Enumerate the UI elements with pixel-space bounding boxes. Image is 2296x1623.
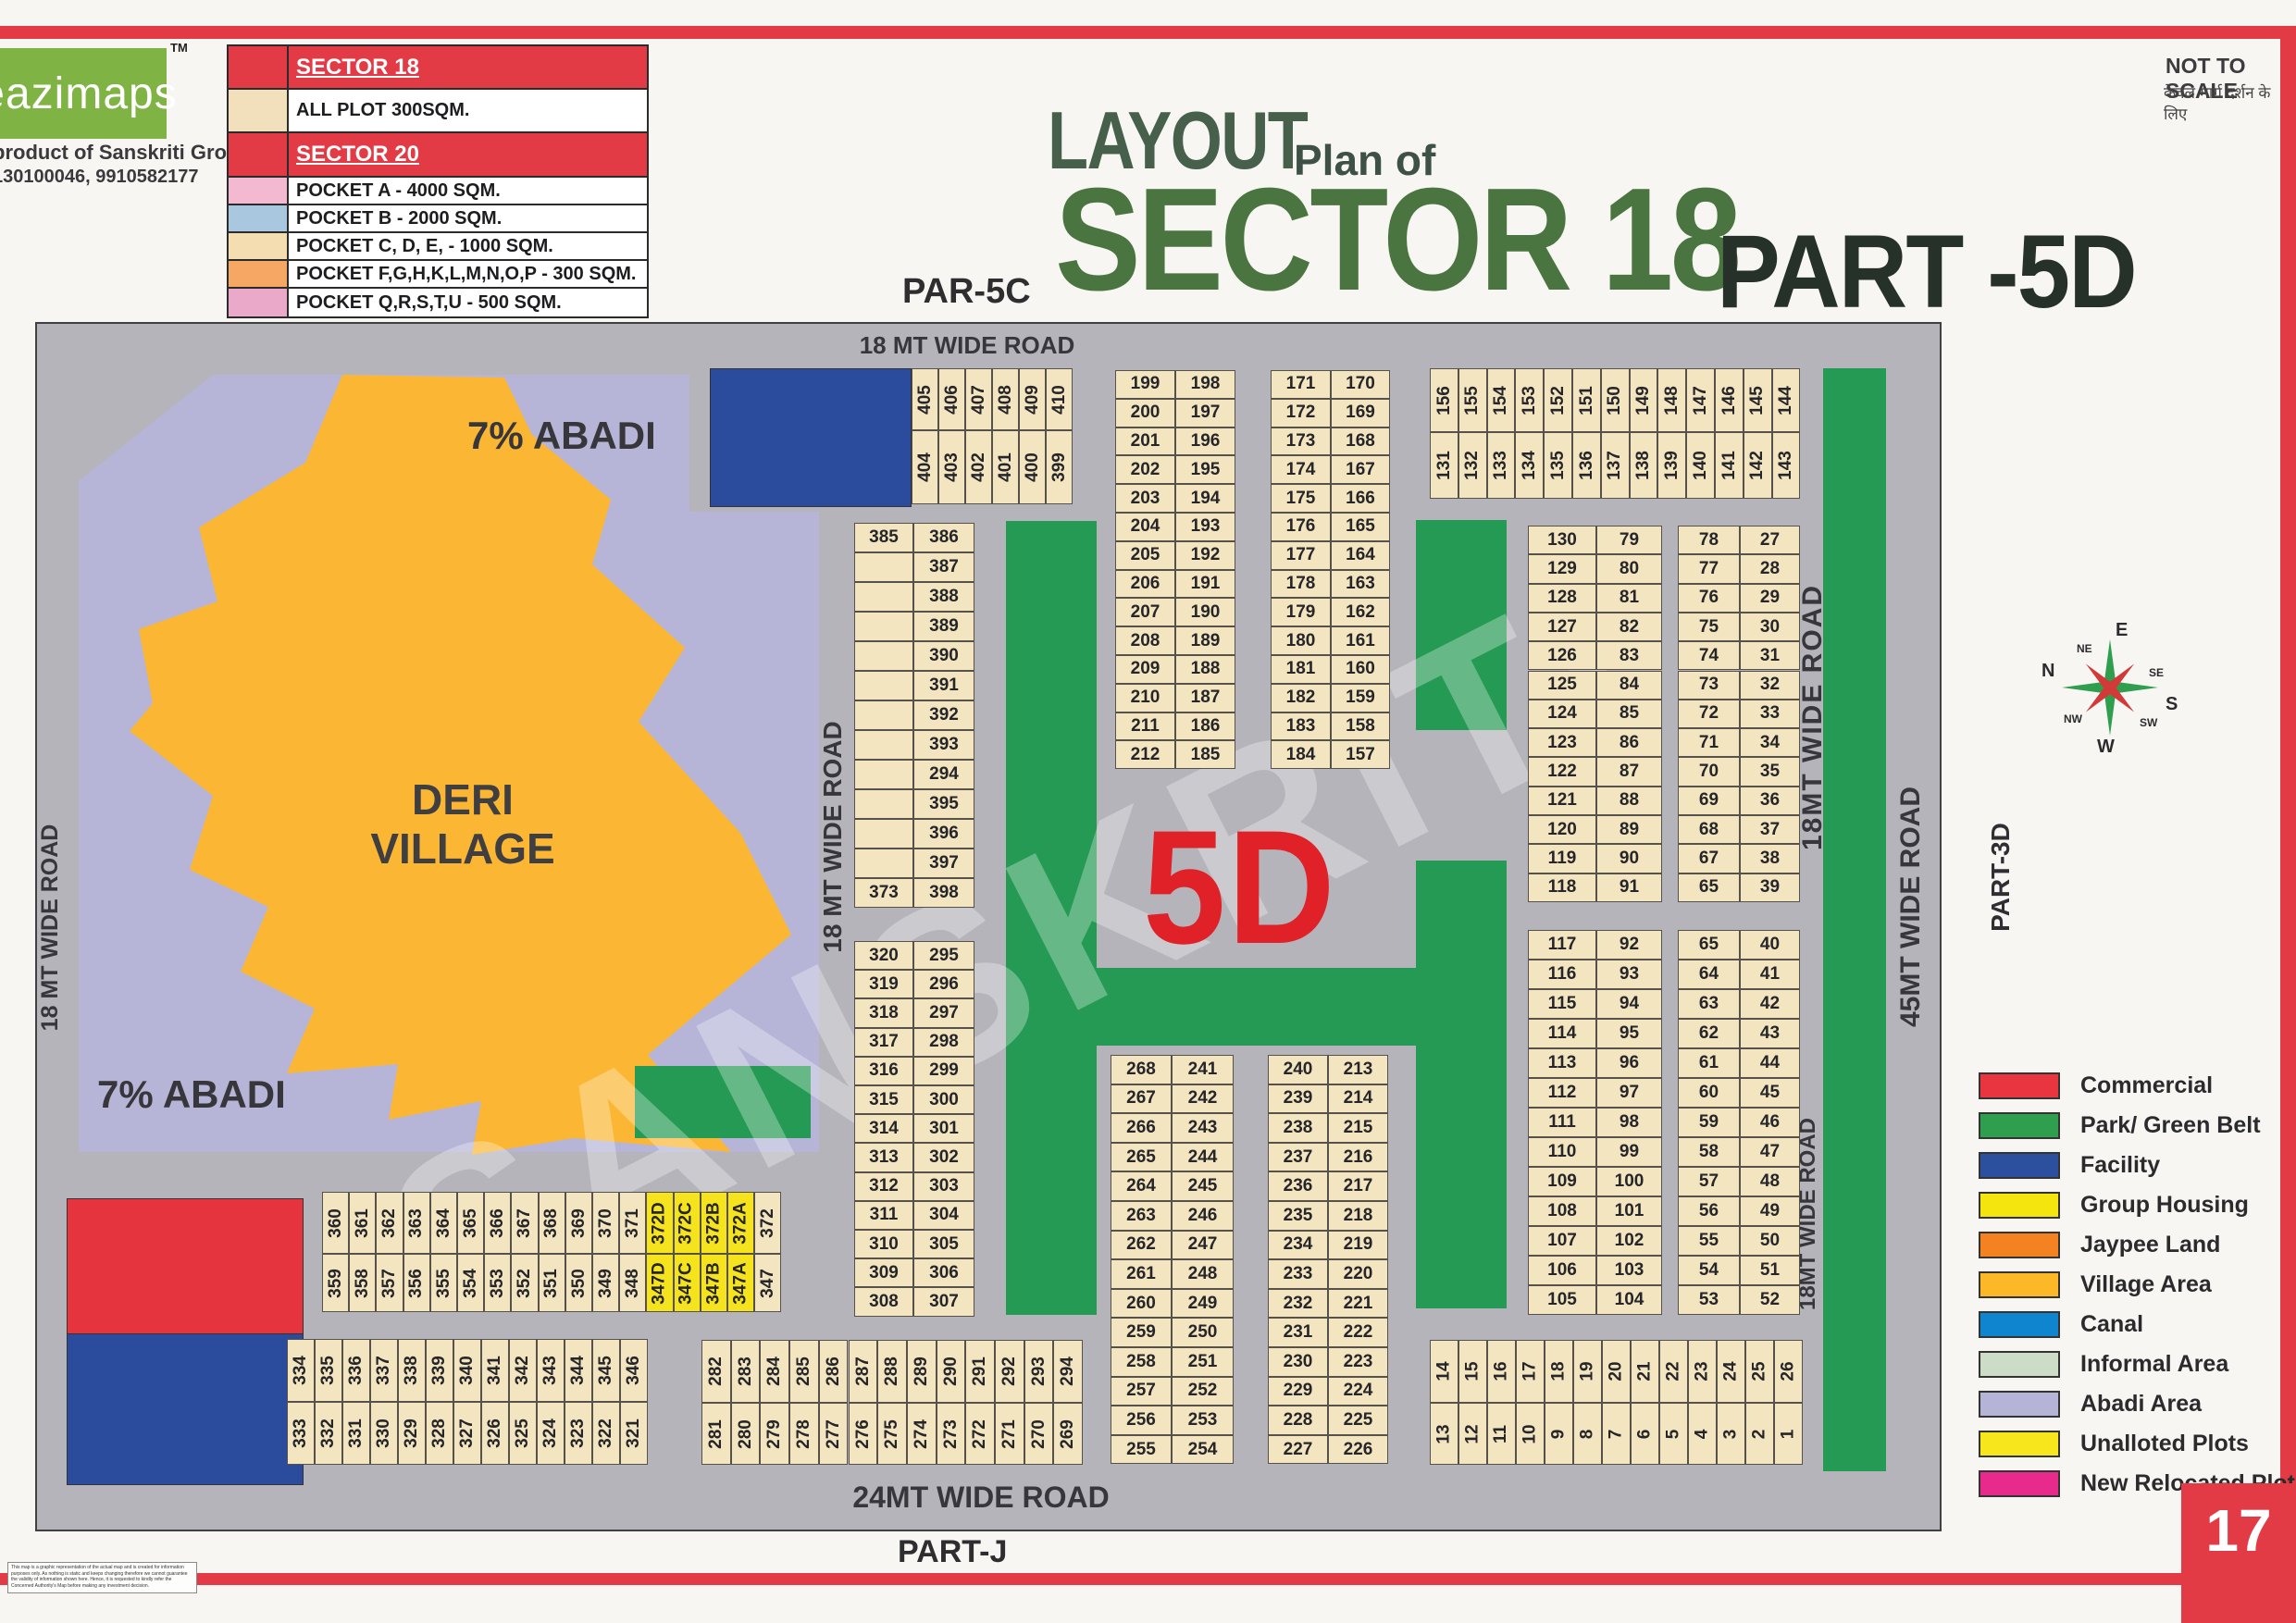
plot-19: 19	[1573, 1340, 1602, 1403]
plot-68: 68	[1678, 815, 1740, 844]
plot-number: 266	[1126, 1118, 1156, 1138]
plot-133: 133	[1487, 432, 1516, 499]
plot-number: 223	[1344, 1352, 1373, 1372]
side-legend-swatch	[1979, 1192, 2060, 1219]
plot-202: 202	[1115, 455, 1175, 484]
plot-174: 174	[1271, 455, 1331, 484]
plot-324: 324	[537, 1402, 565, 1465]
plot-number: 342	[513, 1356, 533, 1385]
plot-358: 358	[349, 1254, 376, 1312]
plot-number: 350	[568, 1269, 589, 1298]
plot-171: 171	[1271, 370, 1331, 399]
plot-number: 404	[915, 452, 936, 482]
plot-36: 36	[1740, 787, 1800, 815]
side-legend-item-4: Jaypee Land	[1979, 1231, 2296, 1258]
plot-62: 62	[1678, 1019, 1740, 1048]
plot-399: 399	[1046, 430, 1073, 504]
plot-number: 279	[764, 1419, 785, 1449]
plot-number: 153	[1520, 386, 1540, 415]
plot-110: 110	[1528, 1137, 1596, 1167]
plot-283: 283	[731, 1340, 761, 1403]
plot-305: 305	[913, 1230, 974, 1258]
facility-zone-bottom	[67, 1333, 304, 1485]
plot-346: 346	[620, 1339, 648, 1402]
plot-number: 216	[1344, 1147, 1373, 1168]
plot-230: 230	[1268, 1347, 1328, 1377]
plot-372C: 372C	[674, 1192, 701, 1254]
plot-26: 26	[1774, 1340, 1803, 1403]
side-legend-item-8: Abadi Area	[1979, 1390, 2296, 1418]
plot-359: 359	[322, 1254, 349, 1312]
plot-27: 27	[1740, 526, 1800, 554]
plot-323: 323	[565, 1402, 592, 1465]
plot-number: 81	[1620, 588, 1639, 608]
plot-number: 319	[869, 974, 899, 995]
plot-number: 127	[1547, 617, 1577, 638]
plot-number: 183	[1286, 716, 1316, 737]
plot-269: 269	[1053, 1403, 1083, 1465]
plot-number: 106	[1547, 1260, 1577, 1281]
plot-138: 138	[1630, 432, 1658, 499]
plot-number: 257	[1126, 1381, 1156, 1401]
plot-number: 263	[1126, 1206, 1156, 1226]
plot-228: 228	[1268, 1406, 1328, 1435]
legend-swatch	[229, 178, 289, 204]
plot-286: 286	[819, 1340, 849, 1403]
plot-number: 281	[706, 1419, 726, 1449]
plot-number: 355	[433, 1269, 453, 1298]
plot-257: 257	[1111, 1377, 1172, 1406]
plot-16: 16	[1487, 1340, 1516, 1403]
plot-number: 64	[1699, 964, 1719, 985]
plot-61: 61	[1678, 1048, 1740, 1078]
plot-number: 58	[1699, 1142, 1719, 1162]
plot-number: 292	[999, 1357, 1020, 1386]
plot-91: 91	[1596, 873, 1662, 902]
plot-number: 27	[1760, 530, 1780, 551]
plot-number: 134	[1520, 451, 1540, 480]
plot-number: 238	[1284, 1118, 1313, 1138]
plot-80: 80	[1596, 554, 1662, 583]
plot-139: 139	[1657, 432, 1686, 499]
plot-number: 152	[1548, 386, 1569, 415]
plot-number: 260	[1126, 1294, 1156, 1314]
plot-number: 19	[1577, 1361, 1597, 1381]
plot-14: 14	[1430, 1340, 1458, 1403]
plot-307: 307	[913, 1287, 974, 1316]
plot-number: 256	[1126, 1410, 1156, 1431]
plot-number: 11	[1492, 1424, 1512, 1443]
plot-number: 44	[1760, 1053, 1780, 1073]
plot-302: 302	[913, 1143, 974, 1171]
plot-number: 42	[1760, 994, 1780, 1014]
plot-number: 222	[1344, 1322, 1373, 1343]
plot-252: 252	[1172, 1377, 1234, 1406]
plot-217: 217	[1328, 1171, 1388, 1201]
plot-337: 337	[370, 1339, 398, 1402]
plot-114: 114	[1528, 1019, 1596, 1048]
hindi-note: केवल मार्ग दर्शन के लिए	[2164, 81, 2296, 124]
plot-274: 274	[907, 1403, 937, 1465]
plot-37: 37	[1740, 815, 1800, 844]
plot-number: 282	[706, 1357, 726, 1386]
plot-4: 4	[1688, 1403, 1717, 1465]
plot-245: 245	[1172, 1171, 1234, 1201]
plot-number: 213	[1344, 1059, 1373, 1080]
map-color-legend: CommercialPark/ Green BeltFacilityGroup …	[1979, 1072, 2296, 1509]
plot-97: 97	[1596, 1078, 1662, 1108]
plot-385: 385	[854, 523, 913, 552]
page-number-badge: 17	[2181, 1483, 2296, 1623]
plot-number: 201	[1131, 431, 1160, 452]
plot-312: 312	[854, 1172, 913, 1201]
plot-336: 336	[342, 1339, 370, 1402]
plot-number: 241	[1188, 1059, 1218, 1080]
plot-number: 79	[1620, 530, 1639, 551]
plot-number: 410	[1049, 385, 1070, 415]
side-legend-label: Informal Area	[2080, 1351, 2228, 1378]
plot-number: 39	[1760, 877, 1780, 898]
plot-210: 210	[1115, 684, 1175, 712]
plot-143: 143	[1772, 432, 1801, 499]
plot-370: 370	[592, 1192, 619, 1254]
plot-number: 28	[1760, 559, 1780, 579]
plot-number: 170	[1346, 374, 1375, 394]
plot-number: 407	[969, 385, 989, 415]
plot-number: 368	[541, 1208, 562, 1238]
plot-number: 264	[1126, 1176, 1156, 1196]
plot-number: 211	[1131, 716, 1160, 737]
plot-number: 365	[461, 1208, 481, 1238]
label-road-bottom: 24MT WIDE ROAD	[787, 1482, 1175, 1512]
plot-number: 353	[488, 1269, 508, 1298]
plot-number: 70	[1699, 762, 1719, 782]
plot-86: 86	[1596, 728, 1662, 757]
plot-99: 99	[1596, 1137, 1662, 1167]
plot-142: 142	[1744, 432, 1772, 499]
plot-48: 48	[1740, 1167, 1800, 1196]
plot-number: 4	[1692, 1429, 1712, 1439]
park-green-belt-bottom-left	[635, 1066, 811, 1138]
plot-number: 181	[1286, 659, 1316, 679]
label-par-5c: PAR-5C	[902, 274, 1031, 309]
plot-number: 236	[1284, 1176, 1313, 1196]
plot-282: 282	[701, 1340, 731, 1403]
plot-13: 13	[1430, 1403, 1458, 1465]
plot-number: 124	[1547, 703, 1577, 724]
side-legend-item-7: Informal Area	[1979, 1350, 2296, 1378]
side-legend-item-1: Park/ Green Belt	[1979, 1111, 2296, 1139]
plot-45: 45	[1740, 1078, 1800, 1108]
plot-72: 72	[1678, 700, 1740, 728]
plot-number: 272	[970, 1419, 990, 1449]
side-legend-label: Abadi Area	[2080, 1391, 2202, 1418]
plot-number: 110	[1548, 1142, 1577, 1162]
plot-129: 129	[1528, 554, 1596, 583]
plot-89: 89	[1596, 815, 1662, 844]
plot-184: 184	[1271, 740, 1331, 769]
plot-number: 387	[929, 557, 959, 577]
label-deri-village: DERI VILLAGE	[333, 775, 592, 873]
plot-number: 57	[1699, 1171, 1719, 1192]
plot-240: 240	[1268, 1055, 1328, 1084]
plot-132: 132	[1458, 432, 1487, 499]
plot-277: 277	[819, 1403, 849, 1465]
plot-52: 52	[1740, 1285, 1800, 1315]
plot-blank	[854, 730, 913, 760]
plot-number: 245	[1188, 1176, 1218, 1196]
plot-number: 363	[406, 1208, 427, 1238]
legend-swatch	[229, 261, 289, 287]
plot-198: 198	[1175, 370, 1235, 399]
plot-334: 334	[287, 1339, 315, 1402]
plot-number: 139	[1662, 451, 1682, 480]
plot-54: 54	[1678, 1256, 1740, 1285]
plot-320: 320	[854, 941, 913, 970]
plot-number: 352	[515, 1269, 535, 1298]
plot-236: 236	[1268, 1171, 1328, 1201]
plot-number: 101	[1615, 1201, 1644, 1221]
plot-237: 237	[1268, 1143, 1328, 1172]
plot-number: 372B	[703, 1202, 724, 1244]
plot-386: 386	[913, 523, 974, 552]
plot-5: 5	[1659, 1403, 1688, 1465]
plot-number: 215	[1344, 1118, 1373, 1138]
plot-172: 172	[1271, 399, 1331, 427]
plot-153: 153	[1515, 368, 1544, 432]
plot-number: 192	[1191, 545, 1221, 565]
plot-blank	[854, 760, 913, 789]
compass-northeast: NE	[2077, 642, 2092, 655]
plot-22: 22	[1659, 1340, 1688, 1403]
plot-300: 300	[913, 1085, 974, 1114]
plot-388: 388	[913, 582, 974, 612]
plot-number: 162	[1346, 602, 1375, 623]
plot-number: 391	[929, 675, 959, 696]
plot-339: 339	[426, 1339, 453, 1402]
plot-number: 150	[1605, 386, 1625, 415]
plot-number: 179	[1286, 602, 1316, 623]
plot-number: 251	[1188, 1352, 1218, 1372]
plot-number: 186	[1191, 716, 1221, 737]
plot-163: 163	[1331, 570, 1390, 599]
plot-354: 354	[457, 1254, 484, 1312]
plot-164: 164	[1331, 541, 1390, 570]
plot-number: 25	[1749, 1361, 1769, 1381]
plot-number: 141	[1719, 451, 1739, 480]
plot-number: 298	[929, 1032, 959, 1052]
plot-190: 190	[1175, 598, 1235, 626]
plot-number: 280	[736, 1419, 756, 1449]
plot-6: 6	[1631, 1403, 1659, 1465]
plot-number: 135	[1548, 451, 1569, 480]
plot-137: 137	[1601, 432, 1630, 499]
plot-145: 145	[1744, 368, 1772, 432]
plot-number: 299	[929, 1060, 959, 1081]
plot-number: 254	[1188, 1440, 1218, 1460]
plot-number: 367	[515, 1208, 535, 1238]
plot-329: 329	[398, 1402, 426, 1465]
plot-94: 94	[1596, 989, 1662, 1019]
plot-number: 224	[1344, 1381, 1373, 1401]
plot-number: 172	[1286, 403, 1316, 423]
plot-195: 195	[1175, 455, 1235, 484]
plot-318: 318	[854, 998, 913, 1027]
plot-number: 219	[1344, 1234, 1373, 1255]
plot-number: 147	[1691, 386, 1711, 415]
plot-number: 14	[1433, 1361, 1454, 1381]
plot-255: 255	[1111, 1435, 1172, 1465]
plot-number: 112	[1548, 1083, 1577, 1103]
plot-401: 401	[992, 430, 1019, 504]
plot-128: 128	[1528, 584, 1596, 613]
plot-7: 7	[1602, 1403, 1631, 1465]
plot-294: 294	[913, 760, 974, 789]
plot-10: 10	[1516, 1403, 1545, 1465]
plot-310: 310	[854, 1230, 913, 1258]
plot-262: 262	[1111, 1231, 1172, 1260]
plot-number: 303	[929, 1176, 959, 1196]
legend-swatch	[229, 133, 289, 176]
plot-number: 21	[1634, 1361, 1655, 1381]
plot-number: 93	[1620, 964, 1639, 985]
plot-number: 145	[1747, 386, 1768, 415]
plot-214: 214	[1328, 1084, 1388, 1114]
plot-371: 371	[619, 1192, 646, 1254]
plot-63: 63	[1678, 989, 1740, 1019]
plot-181: 181	[1271, 655, 1331, 684]
plot-number: 369	[568, 1208, 589, 1238]
plot-319: 319	[854, 970, 913, 998]
plot-number: 140	[1691, 451, 1711, 480]
plot-366: 366	[484, 1192, 511, 1254]
plot-number: 351	[541, 1269, 562, 1298]
plot-number: 68	[1699, 820, 1719, 840]
plot-number: 76	[1699, 588, 1719, 608]
side-legend-label: Unalloted Plots	[2080, 1431, 2249, 1457]
plot-blank	[854, 612, 913, 641]
plot-number: 373	[869, 883, 899, 903]
plot-196: 196	[1175, 427, 1235, 456]
plot-number: 89	[1620, 820, 1639, 840]
plot-92: 92	[1596, 930, 1662, 960]
plot-number: 60	[1699, 1083, 1719, 1103]
plot-number: 331	[346, 1419, 366, 1448]
layout-plan-page: eazimaps TM product of Sanskriti Group 1…	[0, 0, 2296, 1623]
plot-number: 289	[912, 1357, 932, 1386]
plot-372A: 372A	[727, 1192, 754, 1254]
plot-121: 121	[1528, 787, 1596, 815]
plot-77: 77	[1678, 554, 1740, 583]
plot-278: 278	[789, 1403, 819, 1465]
plot-number: 167	[1346, 460, 1375, 480]
plot-number: 126	[1547, 646, 1577, 666]
plot-number: 80	[1620, 559, 1639, 579]
plot-165: 165	[1331, 513, 1390, 541]
plot-number: 196	[1191, 431, 1221, 452]
plot-number: 258	[1126, 1352, 1156, 1372]
plot-119: 119	[1528, 844, 1596, 873]
plot-number: 323	[568, 1419, 589, 1448]
plot-number: 114	[1548, 1023, 1577, 1044]
plot-number: 406	[942, 385, 962, 415]
plot-number: 244	[1188, 1147, 1218, 1168]
plot-number: 108	[1547, 1201, 1577, 1221]
plot-276: 276	[849, 1403, 878, 1465]
plot-number: 271	[999, 1419, 1020, 1449]
plot-59: 59	[1678, 1108, 1740, 1137]
legend-row-6: POCKET F,G,H,K,L,M,N,O,P - 300 SQM.	[229, 261, 647, 289]
plot-403: 403	[938, 430, 965, 504]
plot-127: 127	[1528, 613, 1596, 641]
plot-290: 290	[937, 1340, 966, 1403]
plot-273: 273	[937, 1403, 966, 1465]
plot-162: 162	[1331, 598, 1390, 626]
plot-330: 330	[370, 1402, 398, 1465]
plot-number: 98	[1620, 1112, 1639, 1133]
plot-78: 78	[1678, 526, 1740, 554]
plot-number: 205	[1131, 545, 1160, 565]
plot-number: 103	[1615, 1260, 1644, 1281]
plot-321: 321	[620, 1402, 648, 1465]
plot-402: 402	[965, 430, 992, 504]
plot-146: 146	[1715, 368, 1744, 432]
plot-number: 366	[488, 1208, 508, 1238]
plot-number: 332	[318, 1419, 339, 1448]
plot-331: 331	[342, 1402, 370, 1465]
plot-number: 340	[457, 1356, 478, 1385]
legend-label: POCKET F,G,H,K,L,M,N,O,P - 300 SQM.	[289, 261, 647, 287]
side-legend-swatch	[1979, 1072, 2060, 1099]
plot-156: 156	[1430, 368, 1458, 432]
plot-number: 138	[1633, 451, 1654, 480]
plot-224: 224	[1328, 1377, 1388, 1406]
park-green-belt-east-strip	[1823, 368, 1886, 1471]
plot-number: 395	[929, 794, 959, 814]
plot-number: 62	[1699, 1023, 1719, 1044]
plot-248: 248	[1172, 1259, 1234, 1289]
legend-swatch	[229, 205, 289, 231]
plot-256: 256	[1111, 1406, 1172, 1435]
legend-row-3: POCKET A - 4000 SQM.	[229, 178, 647, 205]
plot-number: 26	[1778, 1361, 1798, 1381]
plot-number: 334	[291, 1356, 311, 1385]
plot-number: 143	[1776, 451, 1796, 480]
plot-number: 30	[1760, 617, 1780, 638]
plot-186: 186	[1175, 712, 1235, 741]
plot-number: 84	[1620, 675, 1639, 695]
plot-191: 191	[1175, 570, 1235, 599]
label-road-top: 18 MT WIDE ROAD	[833, 333, 1101, 357]
plot-number: 372	[758, 1208, 778, 1238]
side-legend-label: Facility	[2080, 1152, 2160, 1179]
plot-number: 157	[1346, 745, 1375, 765]
plot-number: 23	[1692, 1361, 1712, 1381]
plot-83: 83	[1596, 641, 1662, 670]
plot-number: 7	[1606, 1429, 1626, 1439]
plot-332: 332	[315, 1402, 342, 1465]
plot-1: 1	[1774, 1403, 1803, 1465]
plot-number: 191	[1191, 574, 1221, 594]
plot-98: 98	[1596, 1108, 1662, 1137]
plot-220: 220	[1328, 1259, 1388, 1289]
plot-number: 199	[1131, 374, 1160, 394]
plot-number: 102	[1615, 1231, 1644, 1251]
plot-306: 306	[913, 1258, 974, 1287]
plot-number: 115	[1548, 994, 1577, 1014]
plot-203: 203	[1115, 484, 1175, 513]
plot-number: 316	[869, 1060, 899, 1081]
